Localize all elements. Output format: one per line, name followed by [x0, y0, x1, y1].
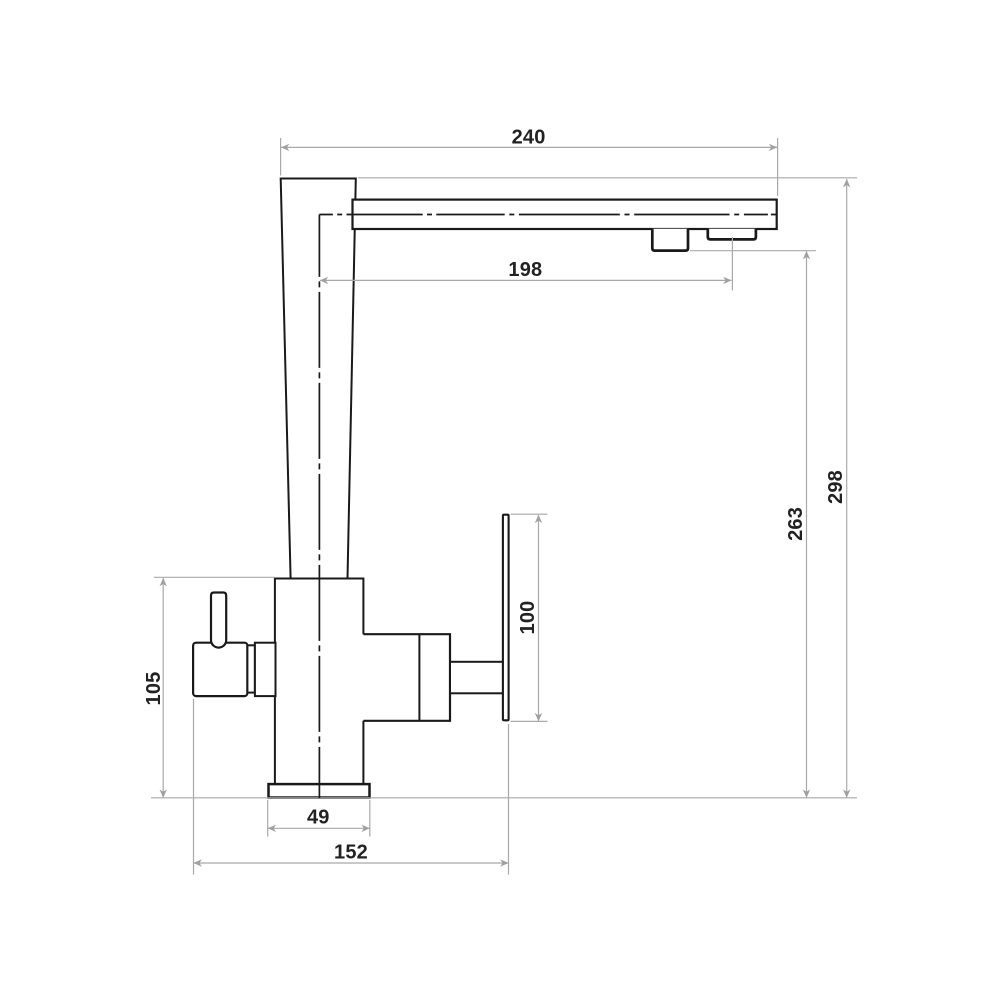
svg-text:105: 105	[143, 672, 165, 706]
svg-text:152: 152	[334, 842, 368, 864]
svg-text:49: 49	[307, 806, 330, 828]
svg-text:298: 298	[825, 470, 847, 504]
svg-text:198: 198	[508, 259, 542, 281]
svg-text:100: 100	[517, 601, 539, 635]
svg-text:263: 263	[785, 507, 807, 541]
svg-text:240: 240	[512, 126, 546, 148]
